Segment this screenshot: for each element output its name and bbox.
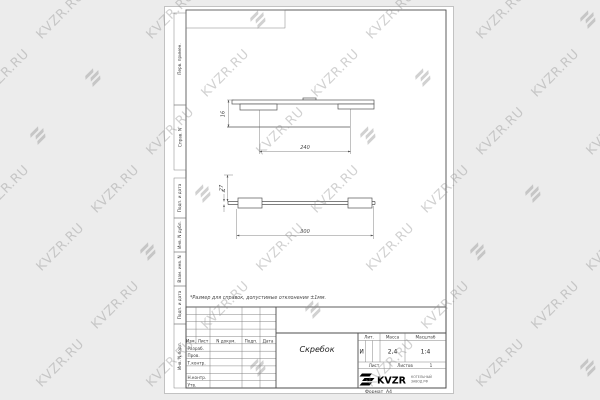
dim-front-width: 240 <box>300 145 310 151</box>
margin-boxes: Перв. примен. Справ. N Подп. и дата Инв.… <box>174 13 186 388</box>
tb-mass-value: 2,4 <box>388 349 398 356</box>
margin-box-label: Подп. и дата <box>177 183 182 212</box>
watermark-logo-icon <box>574 352 600 385</box>
watermark-text: KVZR.RU <box>584 105 600 159</box>
margin-box-label: Инв. N подл. <box>177 342 182 370</box>
watermark-text: KVZR.RU <box>474 105 528 159</box>
margin-box-label: Справ. N <box>178 128 183 147</box>
drawing-frame <box>186 10 446 388</box>
page-background: { "watermark": { "text": "KVZR.RU", "col… <box>0 0 600 400</box>
margin-box-label: Подп. и дата <box>177 290 182 319</box>
tb-col-podp: Подп. <box>245 338 258 343</box>
watermark-text: KVZR.RU <box>529 279 583 333</box>
tb-row-razrab: Разраб. <box>188 346 204 351</box>
watermark-text: KVZR.RU <box>584 221 600 275</box>
tb-sheets-label: Листов <box>397 363 413 368</box>
tb-mass-label: Масса <box>386 335 400 340</box>
watermark-logo-icon <box>24 120 57 153</box>
tb-lit-label: Лит. <box>364 335 374 340</box>
tb-lit-value: И <box>359 349 364 356</box>
tb-col-docum: N докум. <box>216 338 235 343</box>
company-subtitle-line2: ЗАВОД РФ <box>411 380 428 384</box>
tb-sheet-label: Лист <box>369 363 380 368</box>
watermark-text: KVZR.RU <box>89 163 143 217</box>
format-label: Формат <box>365 389 384 393</box>
watermark-text: KVZR.RU <box>34 337 88 391</box>
watermark-text: KVZR.RU <box>89 279 143 333</box>
dim-front-height: 16 <box>221 111 227 117</box>
watermark-logo-icon <box>519 178 552 211</box>
watermark-logo-icon <box>574 4 600 37</box>
margin-box-label: Перв. примен. <box>177 43 182 74</box>
top-reference-box <box>186 10 285 28</box>
drawing-note: *Размер для справок, допустимые отклонен… <box>190 295 326 301</box>
side-view: 27 4 300 <box>219 175 375 239</box>
tb-col-list: Лист <box>198 338 209 343</box>
watermark-logo-icon <box>0 294 2 327</box>
drawing-svg: Перв. примен. Справ. N Подп. и дата Инв.… <box>165 7 453 393</box>
dim-side-length: 300 <box>300 229 310 235</box>
watermark-text: KVZR.RU <box>474 0 528 42</box>
drawing-sheet: Перв. примен. Справ. N Подп. и дата Инв.… <box>165 7 453 393</box>
tb-col-data: Дата <box>263 338 274 343</box>
watermark-logo-icon <box>464 236 497 269</box>
part-name: Скребок <box>299 345 334 354</box>
watermark-text: KVZR.RU <box>0 163 32 217</box>
watermark-text: KVZR.RU <box>34 221 88 275</box>
dim-side-thickness: 4 <box>223 189 226 194</box>
tb-col-izm: Изм. <box>186 338 196 343</box>
tb-row-utv: Утв. <box>188 383 197 388</box>
watermark-text: KVZR.RU <box>529 47 583 101</box>
tb-row-prov: Пров. <box>188 353 200 358</box>
title-block: Изм. Лист N докум. Подп. Дата Разраб. Пр… <box>186 307 446 388</box>
format-value: А4 <box>386 389 392 393</box>
watermark-text: KVZR.RU <box>474 337 528 391</box>
tb-sheets-value: 1 <box>430 363 433 368</box>
tb-row-tkontr: Т.контр. <box>187 360 206 365</box>
tb-scale-label: Масштаб <box>416 335 436 340</box>
tb-row-nkontr: Н.контр. <box>188 375 207 380</box>
company-name: KVZR <box>377 376 407 387</box>
front-view: 16 240 <box>221 98 375 154</box>
company-subtitle-line1: КОТЕЛЬНЫЙ <box>411 374 433 379</box>
watermark-logo-icon <box>134 236 167 269</box>
watermark-text: KVZR.RU <box>0 47 32 101</box>
watermark-text: KVZR.RU <box>34 0 88 42</box>
margin-box-label: Взам. инв. N <box>177 255 182 282</box>
tb-scale-value: 1:4 <box>421 349 431 356</box>
kvzr-logo-icon <box>360 374 375 386</box>
watermark-logo-icon <box>79 62 112 95</box>
margin-box-label: Инв. N дубл. <box>177 221 182 248</box>
